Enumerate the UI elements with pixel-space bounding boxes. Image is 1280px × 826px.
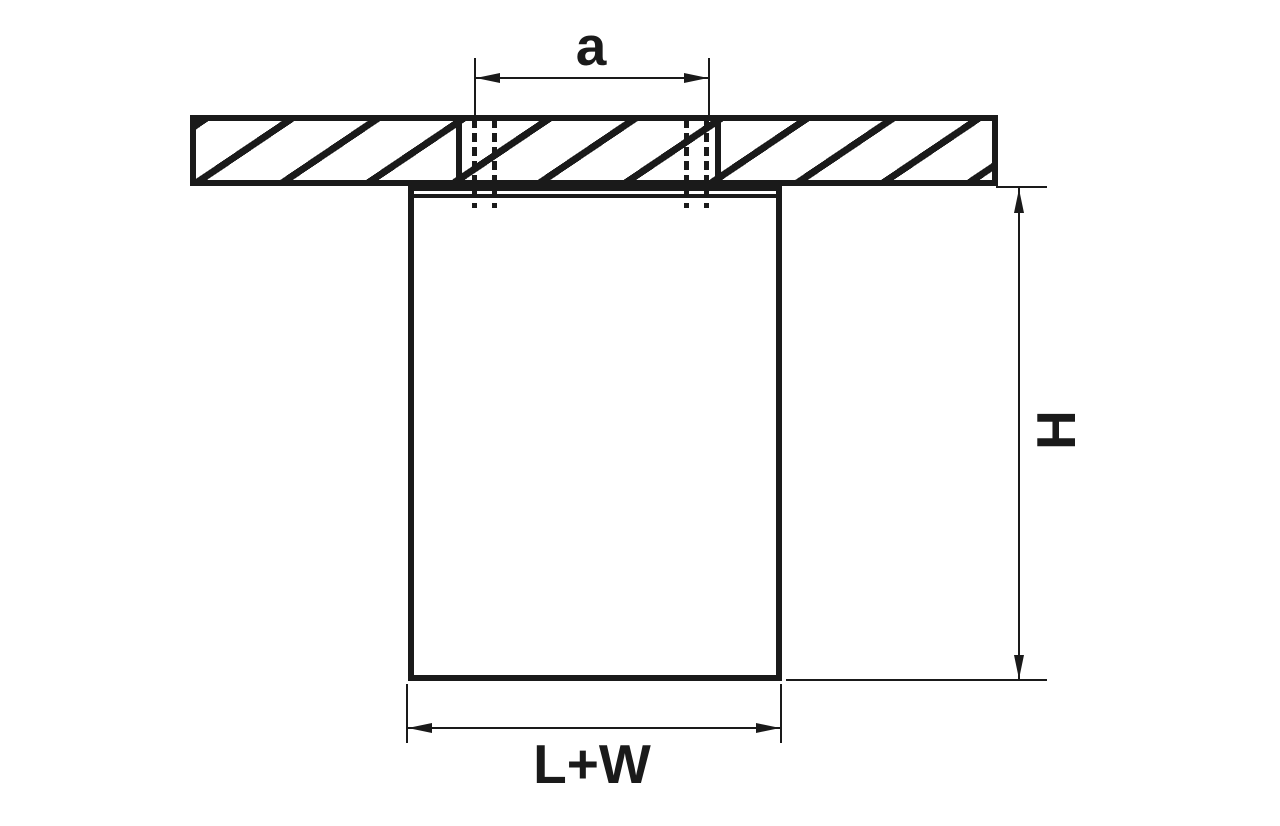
- arrowhead-right-icon: [756, 723, 780, 733]
- dimension-h-label: H: [1028, 402, 1084, 458]
- arrowhead-right-icon: [684, 73, 708, 83]
- arrowhead-up-icon: [1014, 189, 1024, 213]
- screw-hole-dashed-line: [492, 119, 497, 208]
- dimension-lw-label: L+W: [512, 736, 672, 792]
- diagram-canvas: a H L+W: [0, 0, 1280, 826]
- arrowhead-left-icon: [408, 723, 432, 733]
- arrowhead-down-icon: [1014, 655, 1024, 679]
- extension-line-a-left: [474, 58, 476, 116]
- extension-line-h-top: [996, 186, 1047, 188]
- extension-line-lw-right: [780, 684, 782, 743]
- ceiling-cutout-edge-right: [715, 115, 721, 186]
- fixture-flange-seam-line: [412, 194, 778, 198]
- screw-hole-dashed-line: [704, 119, 709, 208]
- extension-line-lw-left: [406, 684, 408, 743]
- extension-line-h-bottom: [786, 679, 1047, 681]
- dimension-a-line: [475, 77, 709, 79]
- dimension-h-line: [1018, 188, 1020, 680]
- arrowhead-left-icon: [476, 73, 500, 83]
- extension-line-a-right: [708, 58, 710, 116]
- ceiling-cutout-edge-left: [456, 115, 462, 186]
- screw-hole-dashed-line: [472, 119, 477, 208]
- dimension-lw-line: [407, 727, 781, 729]
- screw-hole-dashed-line: [684, 119, 689, 208]
- fixture-body: [408, 185, 782, 681]
- dimension-a-label: a: [556, 18, 626, 74]
- ceiling-section: [190, 115, 998, 186]
